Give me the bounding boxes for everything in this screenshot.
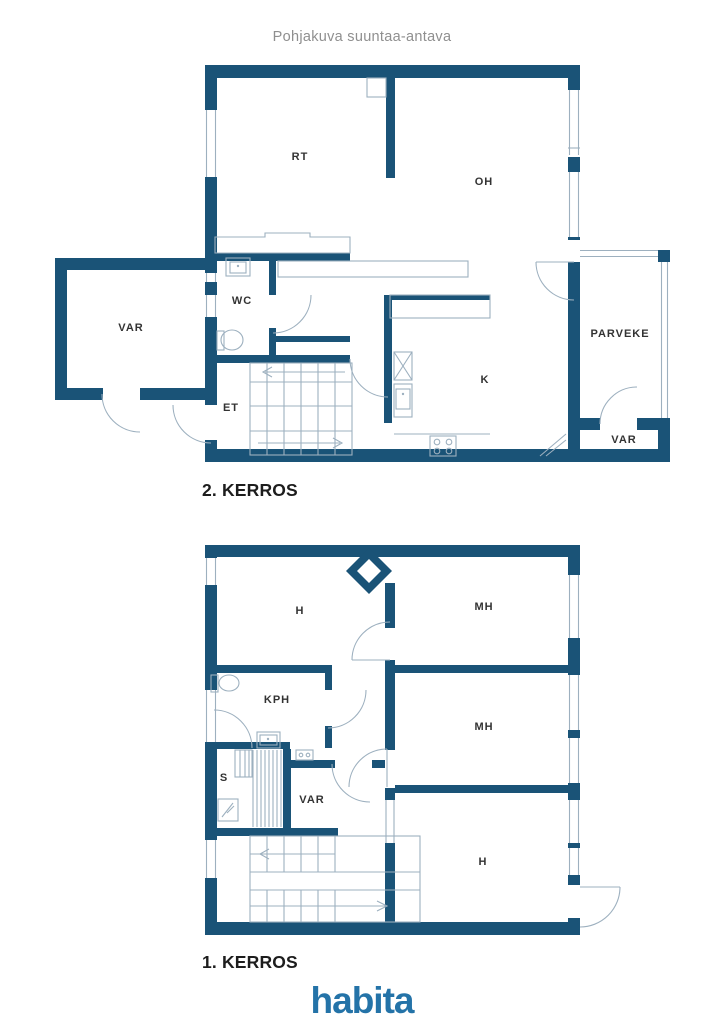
floor2-kitchen-fixtures bbox=[390, 295, 566, 456]
floor2-stairs bbox=[250, 363, 352, 455]
room-label-rt: RT bbox=[292, 151, 309, 163]
floor2-walls bbox=[55, 65, 670, 462]
plan-title: Pohjakuva suuntaa-antava bbox=[0, 29, 724, 45]
floor-plan-1 bbox=[195, 540, 655, 940]
floor1-sauna bbox=[218, 750, 281, 827]
floor-plan-page: Pohjakuva suuntaa-antava bbox=[0, 0, 724, 1024]
room-label-s: S bbox=[220, 772, 228, 784]
room-label-mh-top: MH bbox=[474, 601, 493, 613]
room-label-k: K bbox=[481, 374, 490, 386]
floor2-doors bbox=[102, 262, 637, 443]
floor-label-2: 2. KERROS bbox=[202, 480, 298, 501]
room-label-var-balcony: VAR bbox=[611, 434, 636, 446]
room-label-et: ET bbox=[223, 402, 239, 414]
floor2-flue bbox=[367, 78, 386, 97]
room-label-mh-mid: MH bbox=[474, 721, 493, 733]
room-label-parveke: PARVEKE bbox=[590, 328, 649, 340]
room-label-h-top: H bbox=[296, 605, 305, 617]
room-label-var-annex: VAR bbox=[118, 322, 143, 334]
floor1-walls bbox=[205, 545, 580, 935]
room-label-var: VAR bbox=[299, 794, 324, 806]
floor-label-1: 1. KERROS bbox=[202, 952, 298, 973]
room-label-kph: KPH bbox=[264, 694, 290, 706]
habita-logo: habita bbox=[0, 980, 724, 1022]
room-label-oh: OH bbox=[475, 176, 493, 188]
room-label-h-bottom: H bbox=[479, 856, 488, 868]
room-label-wc: WC bbox=[232, 295, 252, 307]
floor-plan-2 bbox=[40, 58, 690, 472]
